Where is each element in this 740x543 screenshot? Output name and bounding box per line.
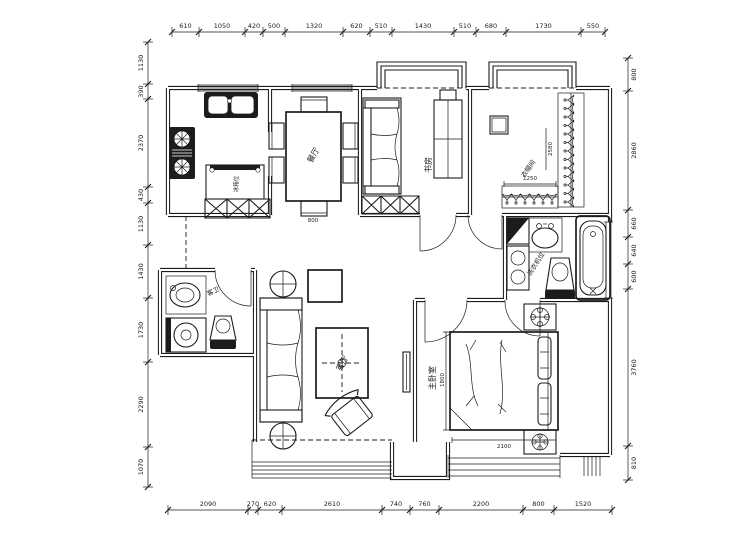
hanger-icon xyxy=(511,194,521,204)
hanger-icon xyxy=(564,155,574,165)
dim-label: 1520 xyxy=(575,500,592,508)
side-table-top xyxy=(270,271,296,297)
closet-stool xyxy=(490,116,508,134)
dim-label: 660 xyxy=(630,217,638,229)
drawing-sheet: 冰箱位 餐厅 800 书房 xyxy=(0,0,740,543)
closet-dim-lines: 1250 2580 xyxy=(504,128,556,187)
dim-label: 510 xyxy=(459,22,471,30)
dim-chain-top: 6101050420500132062051014305106801730550 xyxy=(169,22,608,37)
bed-dim-lines: 1800 2100 xyxy=(440,332,556,450)
toilet-master xyxy=(545,258,575,299)
hanger-icon xyxy=(529,194,539,204)
walls xyxy=(160,88,610,478)
dim-label: 270 xyxy=(247,500,259,508)
dim-label: 640 xyxy=(630,244,638,256)
guest-bath-sink xyxy=(166,276,206,314)
dim-label: 430 xyxy=(137,189,145,201)
toilet-guest xyxy=(210,316,236,349)
study-room-label: 书房 xyxy=(423,157,433,173)
hanger-icon xyxy=(564,197,574,207)
dim-label: 2200 xyxy=(473,500,490,508)
hanger-icon xyxy=(564,121,574,131)
laundry-note-label: 洗衣机位 xyxy=(525,250,547,277)
dim-label: 1730 xyxy=(535,22,552,30)
dim-label: 1070 xyxy=(137,459,145,476)
hanger-icon xyxy=(564,112,574,122)
hanger-icon xyxy=(564,129,574,139)
bed xyxy=(450,332,558,430)
radiator-hatch xyxy=(584,457,600,476)
bed-width-dim: 1800 xyxy=(440,373,446,387)
stove xyxy=(169,127,195,179)
dining-room-label: 餐厅 xyxy=(306,146,322,164)
dining-table: 餐厅 800 xyxy=(269,97,358,224)
dim-chain-bottom: 2090270620261074076022008001520 xyxy=(165,500,615,515)
dim-label: 1320 xyxy=(306,22,323,30)
laundry-cabinet xyxy=(507,218,529,290)
dim-label: 3760 xyxy=(630,359,638,376)
hanger-icon xyxy=(564,138,574,148)
window-master-bedroom xyxy=(448,455,560,478)
fridge-alcove: 冰箱位 xyxy=(206,165,264,199)
hanger-icon xyxy=(547,194,557,204)
dim-label: 740 xyxy=(390,500,402,508)
dim-label: 760 xyxy=(418,500,430,508)
bay-window-living xyxy=(252,440,392,478)
dim-label: 620 xyxy=(350,22,362,30)
closet-width-dim: 1250 xyxy=(523,176,537,182)
door-guest-bath xyxy=(215,270,251,306)
hanger-icon xyxy=(564,172,574,182)
dim-label: 680 xyxy=(485,22,497,30)
dim-label: 1430 xyxy=(137,263,145,280)
bay-window-closet xyxy=(489,62,576,88)
study-sofa-bed xyxy=(363,98,401,194)
fridge-note-label: 冰箱位 xyxy=(232,175,240,192)
door-master-bath xyxy=(505,300,540,336)
dim-chain-left: 1130390237043011301430173022901070 xyxy=(137,39,153,490)
wall-openings-dashed xyxy=(186,88,576,440)
side-table-bottom xyxy=(270,423,296,449)
dim-chain-right: 80028606606406003760810 xyxy=(623,55,638,483)
bathtub xyxy=(576,216,610,300)
master-bedroom-label: 主卧室 xyxy=(427,366,437,390)
hanger-icon xyxy=(564,95,574,105)
dim-label: 610 xyxy=(179,22,191,30)
dim-label: 2860 xyxy=(630,142,638,159)
floor-plan: 冰箱位 餐厅 800 书房 xyxy=(0,0,740,543)
bay-window-study xyxy=(377,62,466,88)
dim-label: 620 xyxy=(264,500,276,508)
nightstand-top xyxy=(524,304,556,330)
door-closet xyxy=(468,215,502,249)
clothes-hangers xyxy=(502,95,574,207)
dim-label: 1130 xyxy=(137,216,145,233)
bed-length-dim: 2100 xyxy=(497,444,511,450)
dim-label: 550 xyxy=(587,22,599,30)
bath-vanity-sink xyxy=(529,218,562,252)
closet-depth-dim: 2580 xyxy=(548,142,554,156)
hanger-icon xyxy=(538,194,548,204)
dim-label: 1730 xyxy=(137,322,145,339)
dim-label: 500 xyxy=(268,22,280,30)
hanger-icon xyxy=(502,194,512,204)
kitchen-sink xyxy=(204,92,258,118)
closet-rail-right xyxy=(558,93,584,207)
hanger-icon xyxy=(564,180,574,190)
dim-label: 600 xyxy=(630,270,638,282)
living-sofa xyxy=(260,298,302,422)
hanger-icon xyxy=(564,104,574,114)
dim-label: 1050 xyxy=(214,22,231,30)
dim-label: 2610 xyxy=(324,500,341,508)
washing-machine xyxy=(166,318,206,352)
dim-label: 1430 xyxy=(415,22,432,30)
hanger-icon xyxy=(564,146,574,156)
tv xyxy=(403,352,410,392)
hanger-icon xyxy=(564,189,574,199)
hanger-icon xyxy=(564,163,574,173)
study-wardrobe xyxy=(434,90,462,178)
window-kitchen xyxy=(198,84,258,92)
dim-label: 420 xyxy=(248,22,260,30)
dim-label: 2290 xyxy=(137,396,145,413)
dim-label: 1130 xyxy=(137,55,145,72)
dining-table-dim: 800 xyxy=(308,218,319,224)
dim-label: 800 xyxy=(532,500,544,508)
nightstand-bottom xyxy=(524,430,556,454)
dim-label: 2090 xyxy=(200,500,217,508)
dim-label: 2370 xyxy=(137,135,145,152)
dim-label: 810 xyxy=(630,457,638,469)
study-cabinet-hatch xyxy=(362,196,419,214)
dim-label: 800 xyxy=(630,68,638,80)
door-study xyxy=(420,215,456,251)
dim-label: 510 xyxy=(375,22,387,30)
dim-label: 390 xyxy=(137,85,145,97)
window-dining xyxy=(292,84,352,92)
end-table xyxy=(308,270,342,302)
hanger-icon xyxy=(520,194,530,204)
